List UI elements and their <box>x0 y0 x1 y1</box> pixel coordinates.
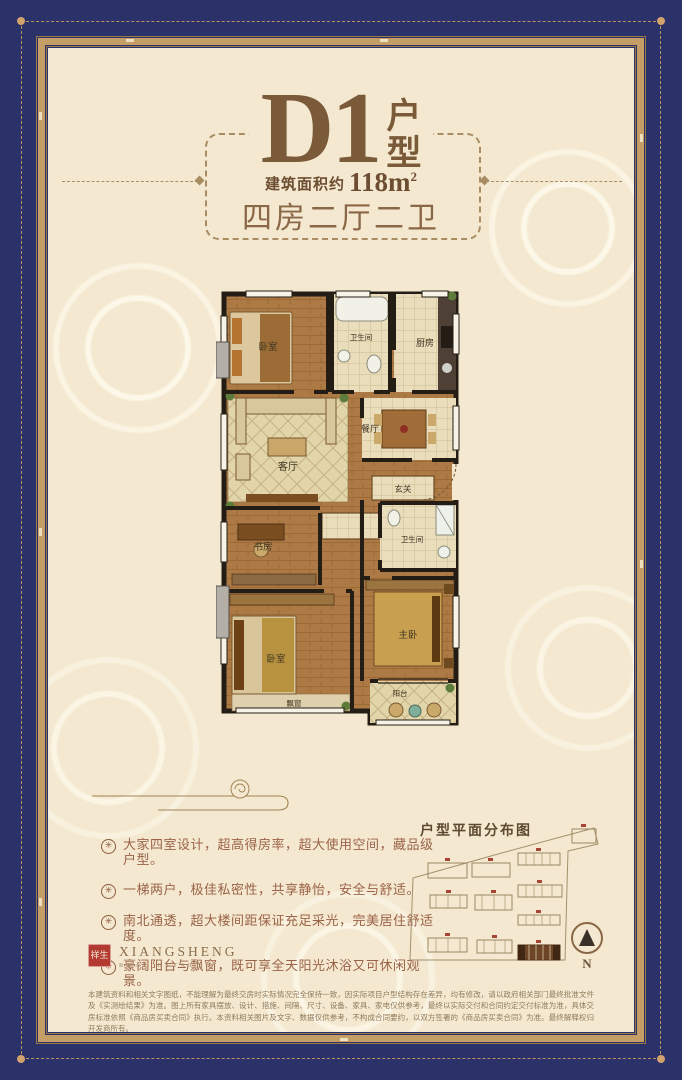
room-label: 书房 <box>253 541 272 553</box>
corner-dot <box>17 1055 25 1063</box>
compass: N <box>570 922 604 972</box>
room-label: 客厅 <box>278 460 298 473</box>
feature-item: ✳ 一梯两户，极佳私密性，共享静怡，安全与舒适。 <box>101 883 446 899</box>
shaft-block <box>216 342 229 378</box>
corner-dot <box>657 1055 665 1063</box>
ornament-bullet-icon: ✳ <box>101 884 116 899</box>
band-tick <box>340 1038 348 1041</box>
shaft-block <box>216 586 229 638</box>
ornament-bullet-icon: ✳ <box>101 915 116 930</box>
compass-north-icon <box>571 922 603 954</box>
room-label: 卫生间 <box>350 332 373 342</box>
brochure-page: D1 户型 建筑面积约 118m2 四房二厅二卫 <box>0 0 682 1080</box>
brand-name: XIANGSHENG <box>119 944 238 960</box>
band-tick <box>640 560 643 568</box>
room-label: 飘窗 <box>287 698 302 708</box>
feature-text: 一梯两户，极佳私密性，共享静怡，安全与舒适。 <box>123 883 420 898</box>
corner-dot <box>17 17 25 25</box>
cloud-ornament <box>88 776 298 822</box>
feature-item: ✳ 大家四室设计，超高得房率，超大使用空间，藏品级户型。 <box>101 838 446 868</box>
band-tick <box>39 898 42 906</box>
room-label: 餐厅 <box>361 423 379 434</box>
area-superscript: 2 <box>411 169 418 184</box>
feature-text: 南北通透，超大楼间距保证充足采光，完美居住舒适度。 <box>123 914 446 944</box>
area-label: 建筑面积约 <box>265 177 345 193</box>
room-label: 卧室 <box>258 341 277 353</box>
siteplan-title: 户型平面分布图 <box>420 820 532 840</box>
compass-label: N <box>570 956 604 972</box>
brand-seal-icon: 祥生 <box>88 944 111 967</box>
brand-logo: 祥生 XIANGSHENG REAL ESTATE <box>88 944 238 969</box>
brand-subtitle: REAL ESTATE <box>119 962 238 969</box>
title-block: D1 户型 <box>0 82 682 176</box>
ornament-bullet-icon: ✳ <box>101 839 116 854</box>
room-label: 卧室 <box>266 653 285 665</box>
corner-dot <box>657 17 665 25</box>
room-label: 阳台 <box>393 688 408 698</box>
siteplan-map <box>402 818 642 980</box>
feature-text: 大家四室设计，超高得房率，超大使用空间，藏品级户型。 <box>123 838 446 868</box>
band-tick <box>126 39 134 42</box>
site-building-highlighted <box>518 945 560 960</box>
unit-code: D1 <box>261 82 380 176</box>
floorplan-diagram: 卧室 卫生间 厨房 客厅 餐厅 玄关 书房 卫生间 卧室 飘窗 主卧 阳台 <box>216 286 466 738</box>
building-number-marks <box>445 824 586 943</box>
unit-type-label: 户型 <box>386 98 421 172</box>
room-label: 卫生间 <box>401 534 424 544</box>
room-label: 厨房 <box>416 337 434 348</box>
rooms-summary: 四房二厅二卫 <box>0 193 682 237</box>
room-label: 玄关 <box>394 484 412 494</box>
band-tick <box>39 528 42 536</box>
feature-list: ✳ 大家四室设计，超高得房率，超大使用空间，藏品级户型。 ✳ 一梯两户，极佳私密… <box>101 838 446 1004</box>
band-tick <box>380 39 388 42</box>
room-label: 主卧 <box>398 629 418 641</box>
feature-item: ✳ 南北通透，超大楼间距保证充足采光，完美居住舒适度。 <box>101 914 446 944</box>
disclaimer-text: 本建筑资料和相关文字图纸，不能理解为最终交房时实际情况完全保持一致，因实际项目户… <box>88 989 594 1034</box>
